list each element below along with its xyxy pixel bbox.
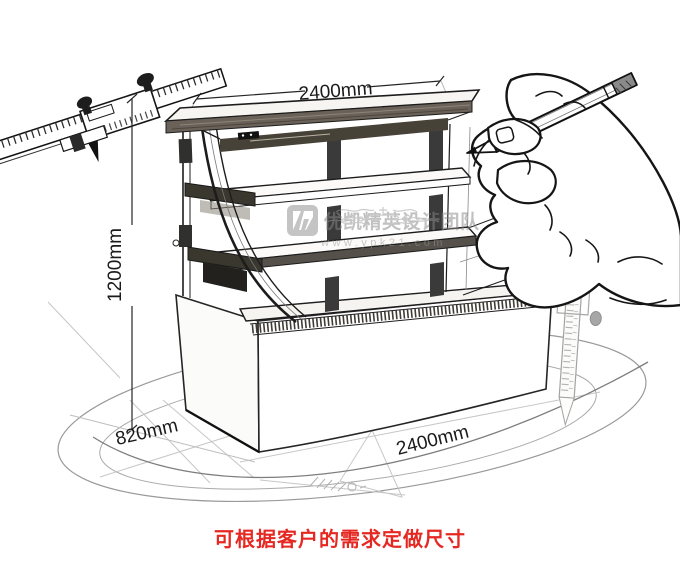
dim-label-height: 1200mm [105, 228, 126, 302]
hand-holding-pencil-sketch [467, 73, 680, 307]
fingernail [496, 126, 515, 143]
dim-label-depth: 820mm [114, 415, 180, 450]
pencil-eraser [612, 73, 637, 94]
line-art-layer: 2400mm 1200mm 820mm 2400mm [0, 0, 680, 578]
dim-label-bottom-width: 2400mm [394, 422, 471, 460]
custom-size-note: 可根据客户的需求定做尺寸 [0, 523, 680, 552]
interior-posts [325, 125, 444, 312]
product-dimension-illustration: 2400mm 1200mm 820mm 2400mm 优凯精英设计团队 www.… [0, 0, 680, 578]
caliper-jaw [88, 140, 104, 163]
gauge-knob [590, 311, 602, 326]
curved-front-glass [202, 125, 306, 322]
